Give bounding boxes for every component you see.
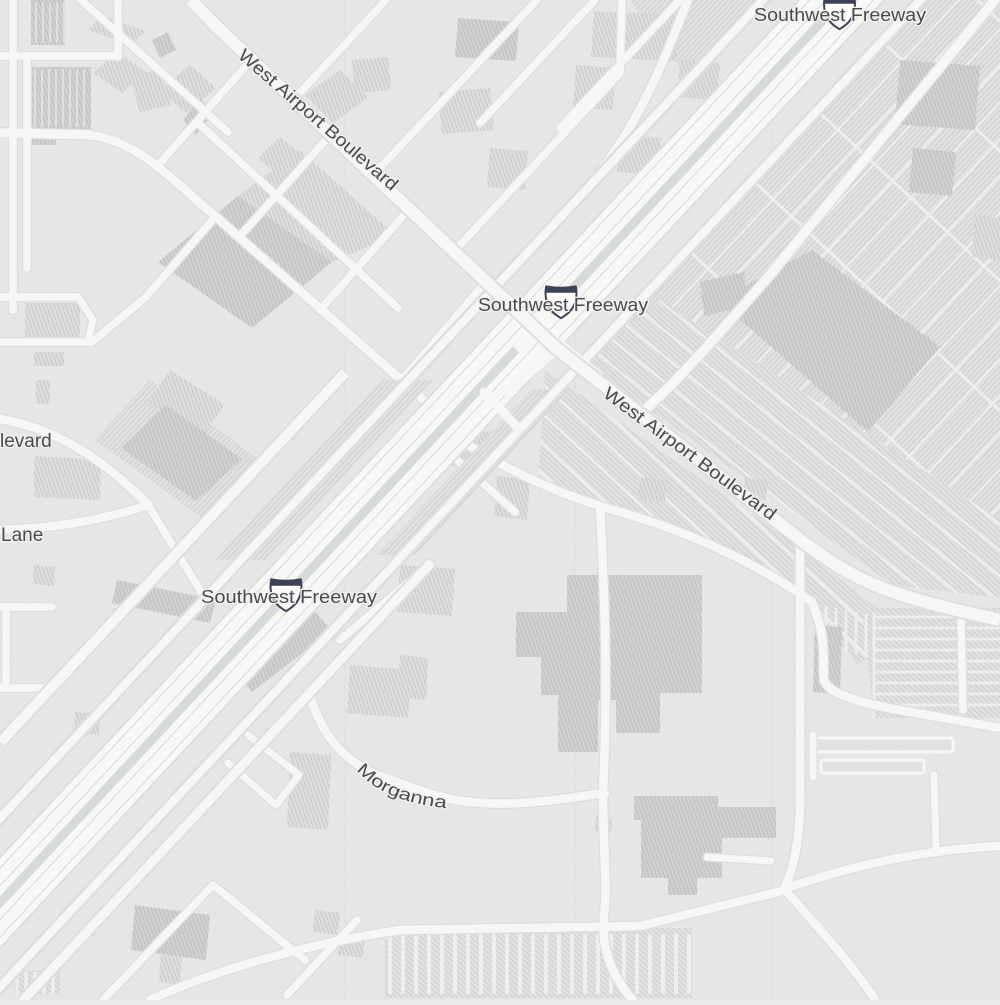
svg-text:Southwest Freeway: Southwest Freeway xyxy=(201,586,378,607)
svg-text:Southwest Freeway: Southwest Freeway xyxy=(478,294,649,315)
svg-text:Southwest Freeway: Southwest Freeway xyxy=(754,4,927,25)
svg-text:Lane: Lane xyxy=(1,525,43,546)
svg-text:levard: levard xyxy=(0,431,52,452)
